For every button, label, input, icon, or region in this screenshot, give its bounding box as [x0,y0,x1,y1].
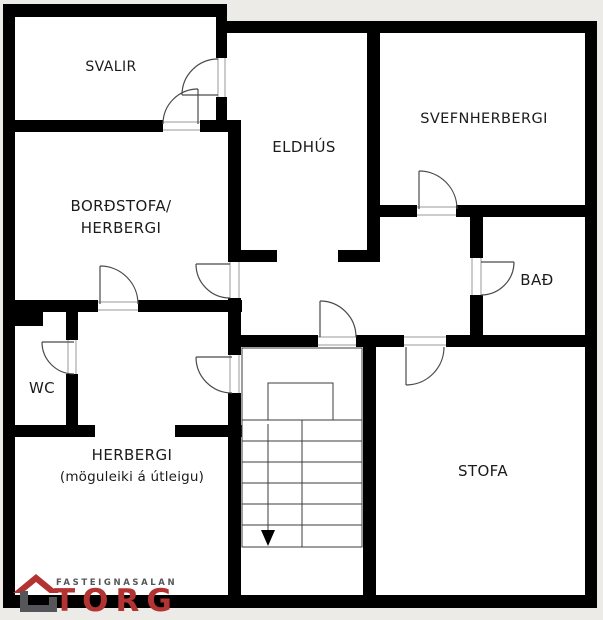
wall-segment [228,125,241,252]
logo-brand: TORG [54,583,179,619]
wall-segment [3,300,98,312]
floor-plan-page: SVALIR ELDHÚS SVEFNHERBERGI BORÐSTOFA/ H… [0,0,603,620]
wall-segment [3,4,227,17]
wall-segment [228,312,241,355]
door-opening-bad [470,258,483,295]
wall-segment [241,335,318,347]
room-label-herbergi-line2: (möguleiki á útleigu) [60,466,204,488]
door-opening-wc [66,340,78,374]
wall-segment [380,205,417,217]
room-label-eldhus: ELDHÚS [272,136,336,158]
room-label-bordstofa-line2: HERBERGI [71,217,172,239]
wall-segment [216,4,227,58]
door-opening-bordstofa-hall [228,262,241,298]
door-opening-svalir [163,120,200,132]
wall-segment [585,21,597,608]
room-label-herbergi-line1: HERBERGI [60,444,204,466]
wall-segment [227,21,597,33]
wall-segment [446,335,585,347]
wall-segment [367,33,380,262]
door-opening-svalir-balcony [216,58,227,97]
floor-plan-drawing [0,0,603,620]
wall-segment [66,312,78,340]
wall-segment [363,347,376,595]
wall-segment [3,120,163,132]
house-roof [13,574,58,593]
house-icon [12,572,58,614]
room-label-stofa: STOFA [458,460,508,482]
wall-segment [228,437,241,595]
room-label-wc: WC [29,377,55,399]
wall-segment [15,312,43,326]
wall-segment [356,335,404,347]
room-label-bordstofa-line1: BORÐSTOFA/ [71,195,172,217]
wall-segment [228,393,241,437]
door-opening-stofa [404,335,446,347]
wall-segment [470,295,483,347]
door-opening-corridor-stairs [228,355,241,393]
door-opening-bordstofa-corridor [98,300,138,312]
door-opening-hall-stairs [318,335,356,347]
wall-segment [470,217,483,258]
room-label-herbergi: HERBERGI (möguleiki á útleigu) [60,444,204,488]
wall-segment [456,205,585,217]
room-label-bordstofa: BORÐSTOFA/ HERBERGI [71,195,172,239]
room-label-svalir: SVALIR [85,56,136,78]
wall-segment [138,300,242,312]
wall-segment [3,425,95,437]
door-opening-svefnherbergi [417,205,456,217]
room-label-svefnherbergi: SVEFNHERBERGI [420,108,548,130]
wall-segment [228,250,277,262]
room-label-bad: BAÐ [520,269,553,291]
brand-logo: FASTEIGNASALAN TORG [12,572,187,616]
wall-segment [66,374,78,425]
